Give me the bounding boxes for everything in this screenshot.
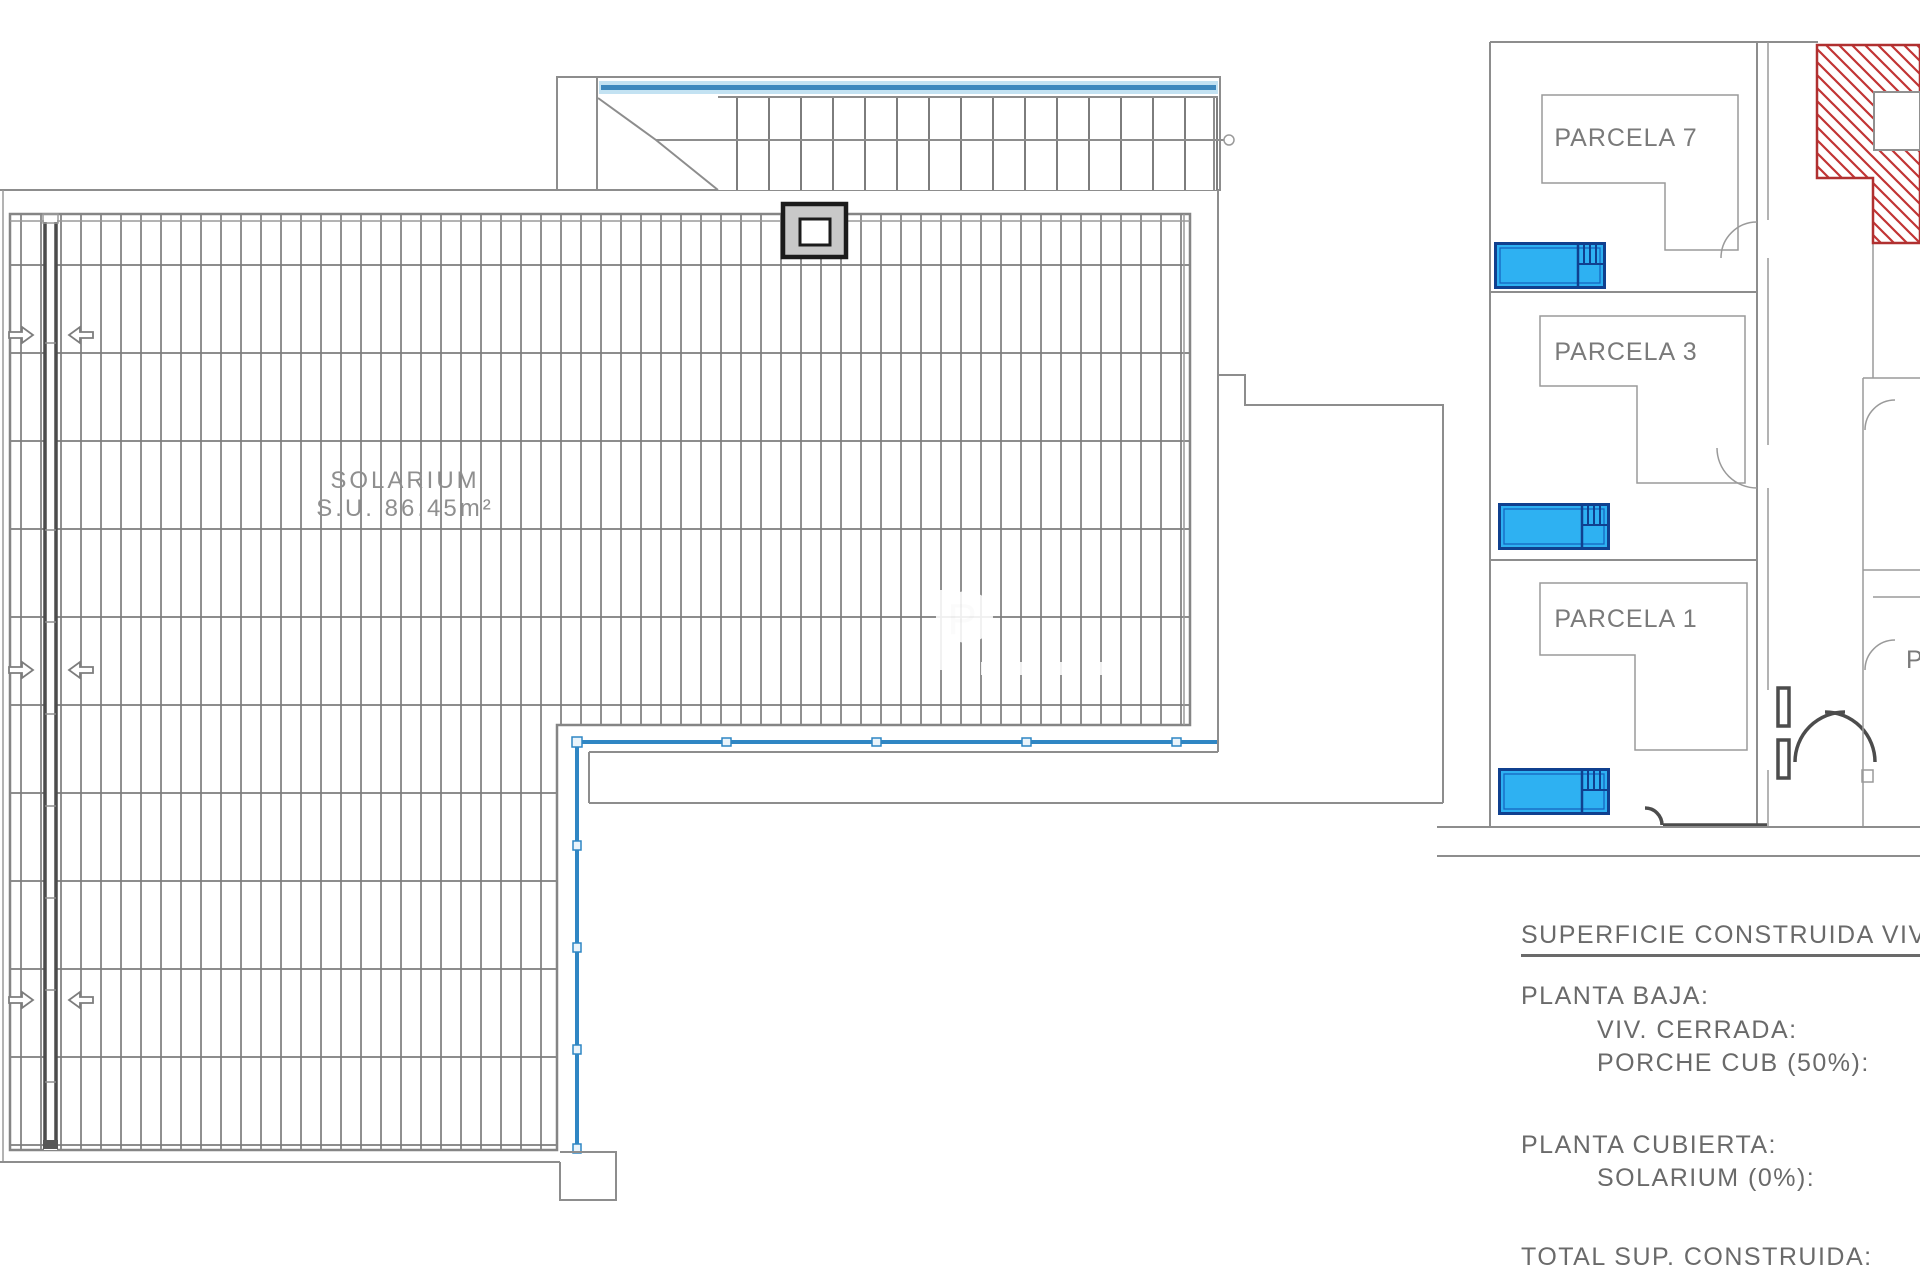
summary-heading-planta-cubierta: PLANTA CUBIERTA: xyxy=(1521,1132,1920,1158)
summary-total-label: TOTAL SUP. CONSTRUIDA: xyxy=(1521,1244,1920,1270)
pool-parcela-3 xyxy=(1500,505,1609,549)
solarium-name-label: SOLARIUM xyxy=(330,467,479,494)
site-key-plan: PARCELA 7 PARCELA 3 PARCELA 1 xyxy=(1437,42,1920,856)
chimney xyxy=(783,204,846,257)
door-symbols xyxy=(1645,222,1875,825)
solarium-plan: SOLARIUM S.U. 86.45m² P xyxy=(0,77,1443,1200)
step-edge-railing xyxy=(572,737,1218,1153)
summary-item-viv-cerrada: VIV. CERRADA: xyxy=(1521,1017,1920,1043)
neighbor-parcel-label-cutoff: P xyxy=(1906,646,1920,674)
stair-treads xyxy=(718,97,1218,190)
solarium-tiled-area xyxy=(10,214,1190,1150)
stair-walk-line-end xyxy=(1224,135,1234,145)
summary-item-porche-cub: PORCHE CUB (50%): xyxy=(1521,1050,1920,1076)
watermark-monogram: P xyxy=(947,595,976,644)
summary-item-solarium: SOLARIUM (0%): xyxy=(1521,1165,1920,1191)
bottom-ledge xyxy=(0,1152,616,1200)
channel-end-cap xyxy=(43,1140,58,1149)
summary-title: SUPERFICIE CONSTRUIDA VIV 3 xyxy=(1521,922,1920,957)
stair-break-line xyxy=(598,98,718,190)
railing-posts xyxy=(572,737,1181,1153)
staircase xyxy=(557,77,1234,190)
summary-heading-planta-baja: PLANTA BAJA: xyxy=(1521,983,1920,1009)
parcela-7-label: PARCELA 7 xyxy=(1554,124,1697,152)
neighbor-buildings xyxy=(1863,150,1920,827)
floorplan-page: SOLARIUM S.U. 86.45m² P PARCELA 7 xyxy=(0,0,1920,1280)
surface-summary: SUPERFICIE CONSTRUIDA VIV 3 PLANTA BAJA:… xyxy=(1521,922,1920,1270)
parcela-3-label: PARCELA 3 xyxy=(1554,338,1697,366)
neighbor-structure xyxy=(1218,375,1443,803)
house-footprint-parcela-7 xyxy=(1542,95,1738,250)
pool-parcela-7 xyxy=(1496,244,1605,288)
solarium-area-label: S.U. 86.45m² xyxy=(316,495,493,522)
parcela-1-label: PARCELA 1 xyxy=(1554,605,1697,633)
dwelling-window xyxy=(1874,92,1920,150)
pool-parcela-1 xyxy=(1500,770,1609,814)
